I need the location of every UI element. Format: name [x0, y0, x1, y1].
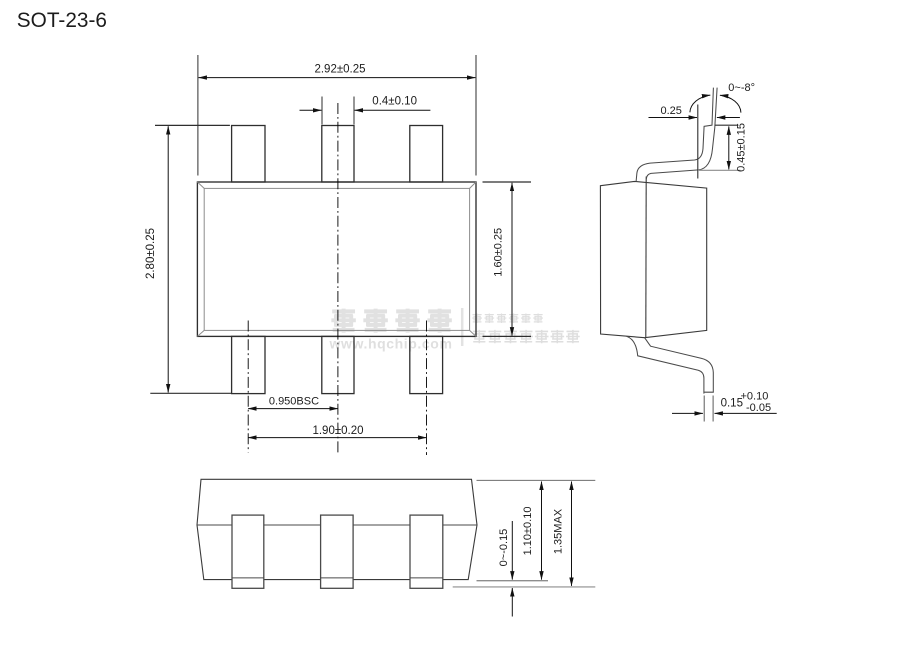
svg-text:1.10±0.10: 1.10±0.10: [522, 507, 534, 556]
svg-text:-0.05: -0.05: [746, 402, 771, 414]
svg-text:2.80±0.25: 2.80±0.25: [145, 228, 157, 279]
svg-text:1.90±0.20: 1.90±0.20: [312, 425, 363, 437]
svg-text:0.4±0.10: 0.4±0.10: [372, 96, 417, 108]
svg-text:0.45±0.15: 0.45±0.15: [736, 123, 748, 172]
svg-text:1.35MAX: 1.35MAX: [552, 508, 564, 554]
svg-text:www.hqchip.com: www.hqchip.com: [329, 336, 453, 352]
svg-text:0~-8°: 0~-8°: [728, 82, 755, 94]
svg-text:0.950BSC: 0.950BSC: [269, 396, 319, 408]
svg-text:0.25: 0.25: [661, 105, 682, 117]
svg-text:2.92±0.25: 2.92±0.25: [314, 63, 365, 75]
svg-text:+0.10: +0.10: [741, 391, 769, 403]
svg-text:1.60±0.25: 1.60±0.25: [492, 228, 504, 277]
svg-text:0~-0.15: 0~-0.15: [498, 529, 510, 567]
svg-text:SOT-23-6: SOT-23-6: [17, 9, 107, 32]
